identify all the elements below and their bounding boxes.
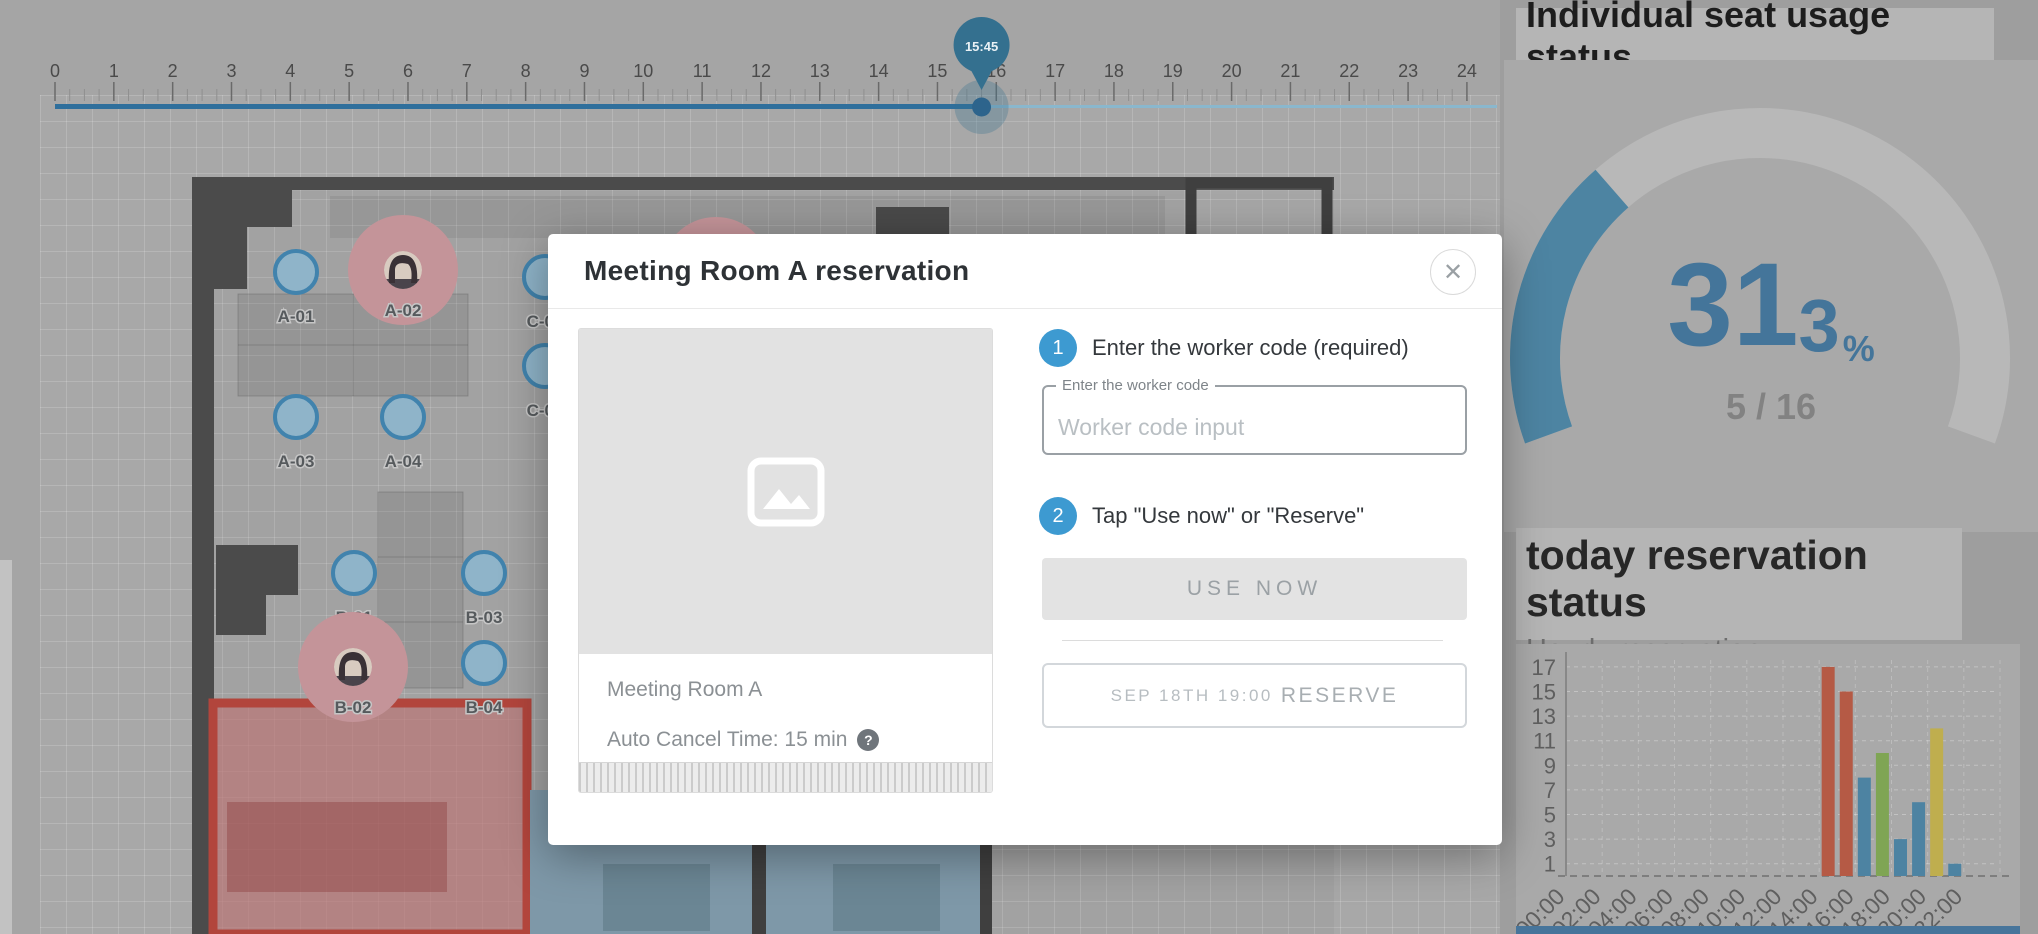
- svg-text:21: 21: [1280, 61, 1300, 81]
- svg-text:1: 1: [109, 61, 119, 81]
- reserve-label: RESERVE: [1281, 684, 1399, 708]
- button-divider: [1062, 640, 1443, 641]
- seat-B-03[interactable]: B-03: [463, 552, 505, 627]
- step-1-badge: 1: [1039, 329, 1077, 367]
- step-2: 2 Tap "Use now" or "Reserve": [1039, 497, 1364, 535]
- room-name: Meeting Room A: [607, 678, 964, 702]
- modal-header: Meeting Room A reservation ✕: [548, 234, 1502, 309]
- chart-bottom-bar: [1516, 926, 2020, 934]
- wall-corner-block-2: [192, 177, 247, 289]
- worker-code-field: Enter the worker code: [1042, 385, 1467, 455]
- svg-text:11: 11: [1533, 729, 1556, 754]
- app-screen: 0123456789101112131415161718192021222324…: [0, 0, 2038, 934]
- use-now-button[interactable]: USE NOW: [1042, 558, 1467, 620]
- svg-text:6: 6: [403, 61, 413, 81]
- svg-text:23: 23: [1398, 61, 1418, 81]
- svg-text:A-04: A-04: [385, 452, 422, 471]
- bar-15:00: [1840, 692, 1853, 877]
- card-stripes: [579, 762, 992, 792]
- svg-text:13: 13: [810, 61, 830, 81]
- seat-A-01[interactable]: A-01: [275, 251, 317, 326]
- svg-text:1: 1: [1544, 852, 1556, 877]
- svg-text:20: 20: [1222, 61, 1242, 81]
- svg-text:9: 9: [579, 61, 589, 81]
- seat-A-03[interactable]: A-03: [275, 396, 317, 471]
- bar-18:00: [1894, 839, 1907, 876]
- svg-text:7: 7: [462, 61, 472, 81]
- usage-percent: 313%: [1504, 246, 2038, 364]
- svg-text:10: 10: [633, 61, 653, 81]
- auto-cancel-label: Auto Cancel Time: 15 min: [607, 728, 847, 752]
- image-icon: [747, 457, 825, 527]
- step-1-label: Enter the worker code (required): [1092, 335, 1409, 361]
- close-icon: ✕: [1443, 258, 1463, 287]
- svg-text:17: 17: [1045, 61, 1065, 81]
- room-card: Meeting Room A Auto Cancel Time: 15 min …: [578, 328, 993, 793]
- svg-text:3: 3: [226, 61, 236, 81]
- svg-text:11: 11: [693, 61, 712, 81]
- svg-text:0: 0: [50, 61, 60, 81]
- svg-text:18: 18: [1104, 61, 1124, 81]
- left-edge-strip: [0, 560, 12, 934]
- svg-text:B-02: B-02: [335, 698, 372, 717]
- svg-text:24: 24: [1457, 61, 1477, 81]
- bar-21:00: [1948, 864, 1961, 876]
- bar-17:00: [1876, 753, 1889, 876]
- worker-code-field-label: Enter the worker code: [1056, 377, 1215, 394]
- svg-text:14: 14: [869, 61, 889, 81]
- bar-16:00: [1858, 778, 1871, 876]
- svg-text:3: 3: [1544, 827, 1556, 852]
- svg-text:12: 12: [751, 61, 771, 81]
- seat-usage-title: Individual seat usage status: [1516, 8, 1994, 64]
- svg-text:8: 8: [521, 61, 531, 81]
- percent-sign: %: [1843, 331, 1875, 367]
- worker-code-input[interactable]: [1044, 387, 1465, 453]
- svg-text:B-03: B-03: [466, 608, 503, 627]
- seat-B-04[interactable]: B-04: [463, 642, 505, 717]
- timeline-marker-label: 15:45: [965, 39, 998, 54]
- bar-20:00: [1930, 728, 1943, 876]
- svg-text:5: 5: [1544, 803, 1556, 828]
- usage-percent-int: 31: [1667, 246, 1798, 364]
- svg-text:B-04: B-04: [466, 698, 503, 717]
- room-image-placeholder: [579, 329, 992, 654]
- seat-A-02[interactable]: A-02: [348, 215, 458, 325]
- svg-text:19: 19: [1163, 61, 1183, 81]
- timeline-ruler: 0123456789101112131415161718192021222324: [50, 61, 1497, 107]
- wall-top: [192, 177, 1334, 190]
- step-2-label: Tap "Use now" or "Reserve": [1092, 503, 1364, 529]
- usage-fraction: 5 / 16: [1504, 386, 2038, 428]
- svg-text:A-02: A-02: [385, 301, 422, 320]
- reservation-status-header: today reservation status Hourly reservat…: [1516, 528, 1962, 640]
- reserve-date: SEP 18TH 19:00: [1111, 686, 1273, 706]
- svg-text:17: 17: [1532, 655, 1556, 680]
- svg-text:5: 5: [344, 61, 354, 81]
- svg-text:15: 15: [1532, 680, 1556, 705]
- svg-text:A-03: A-03: [278, 452, 315, 471]
- hourly-reservation-chart: 135791113151700:0002:0004:0006:0008:0010…: [1504, 640, 2038, 934]
- step-2-badge: 2: [1039, 497, 1077, 535]
- reserve-button[interactable]: SEP 18TH 19:00 RESERVE: [1042, 663, 1467, 728]
- svg-text:22: 22: [1339, 61, 1359, 81]
- svg-text:2: 2: [168, 61, 178, 81]
- svg-text:15: 15: [927, 61, 947, 81]
- help-icon[interactable]: ?: [857, 729, 879, 751]
- svg-text:9: 9: [1544, 753, 1556, 778]
- wall-block-left-2: [216, 545, 266, 635]
- usage-percent-dec: 3: [1799, 289, 1840, 363]
- step-1: 1 Enter the worker code (required): [1039, 329, 1409, 367]
- reservation-modal: Meeting Room A reservation ✕ Meeting Roo…: [548, 234, 1502, 845]
- svg-text:A-01: A-01: [278, 307, 315, 326]
- modal-title: Meeting Room A reservation: [584, 255, 969, 287]
- reservation-status-title: today reservation status: [1526, 532, 1962, 626]
- seat-B-02[interactable]: B-02: [298, 612, 408, 722]
- close-button[interactable]: ✕: [1430, 249, 1476, 295]
- seat-A-04[interactable]: A-04: [382, 396, 424, 471]
- auto-cancel-row: Auto Cancel Time: 15 min ?: [607, 728, 964, 752]
- svg-text:13: 13: [1532, 704, 1556, 729]
- bar-19:00: [1912, 802, 1925, 876]
- room-info: Meeting Room A Auto Cancel Time: 15 min …: [579, 654, 992, 752]
- room-red: [213, 703, 527, 934]
- svg-text:7: 7: [1544, 778, 1556, 803]
- svg-text:4: 4: [285, 61, 295, 81]
- bar-14:00: [1822, 667, 1835, 876]
